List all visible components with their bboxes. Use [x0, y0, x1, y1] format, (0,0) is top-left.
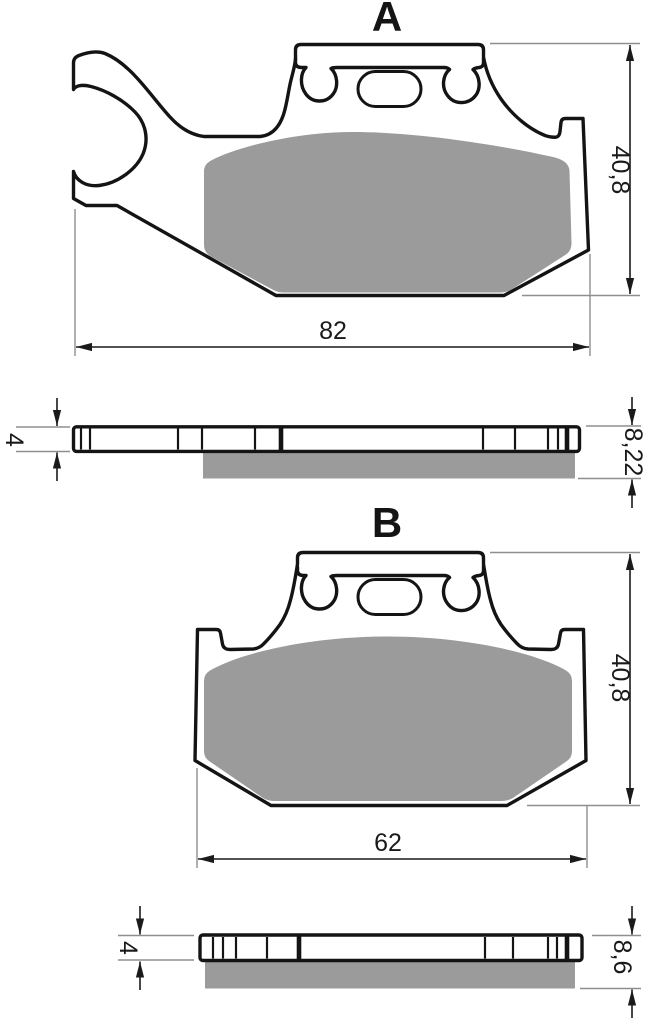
dim-label-total-b: 8,6 — [608, 940, 636, 975]
pad-a-plan-view — [74, 45, 589, 296]
dim-label-height-a: 40,8 — [606, 146, 634, 195]
dim-label-height-b: 40,8 — [606, 654, 634, 703]
dim-label-thickness-b: 4 — [114, 941, 142, 955]
brake-pad-drawing: A 82 40,8 — [0, 0, 645, 1024]
dim-label-width-a: 82 — [319, 317, 347, 345]
pad-a-friction-material — [204, 132, 572, 293]
pad-b-friction-material — [204, 637, 572, 802]
dim-label-total-a: 8,22 — [619, 428, 645, 477]
pad-b-plan-view — [195, 553, 586, 806]
pad-b-slot-hole — [358, 580, 421, 615]
dim-label-width-b: 62 — [374, 829, 402, 857]
pad-a-side-view: 4 8,22 — [0, 397, 645, 508]
pad-a-slot-hole — [358, 72, 421, 107]
pad-a-side-backplate — [74, 427, 580, 452]
section-a-title: A — [372, 0, 402, 40]
section-b: B 62 40,8 — [114, 499, 641, 1018]
section-b-title: B — [372, 499, 402, 546]
pad-b-side-view: 4 8,6 — [114, 906, 641, 1018]
pad-b-side-friction — [205, 961, 575, 989]
section-a: A 82 40,8 — [0, 0, 645, 508]
pad-a-side-friction — [203, 452, 575, 479]
drawing-page: A 82 40,8 — [0, 0, 645, 1024]
pad-b-side-backplate — [200, 935, 582, 961]
dim-label-thickness-a: 4 — [0, 433, 28, 447]
